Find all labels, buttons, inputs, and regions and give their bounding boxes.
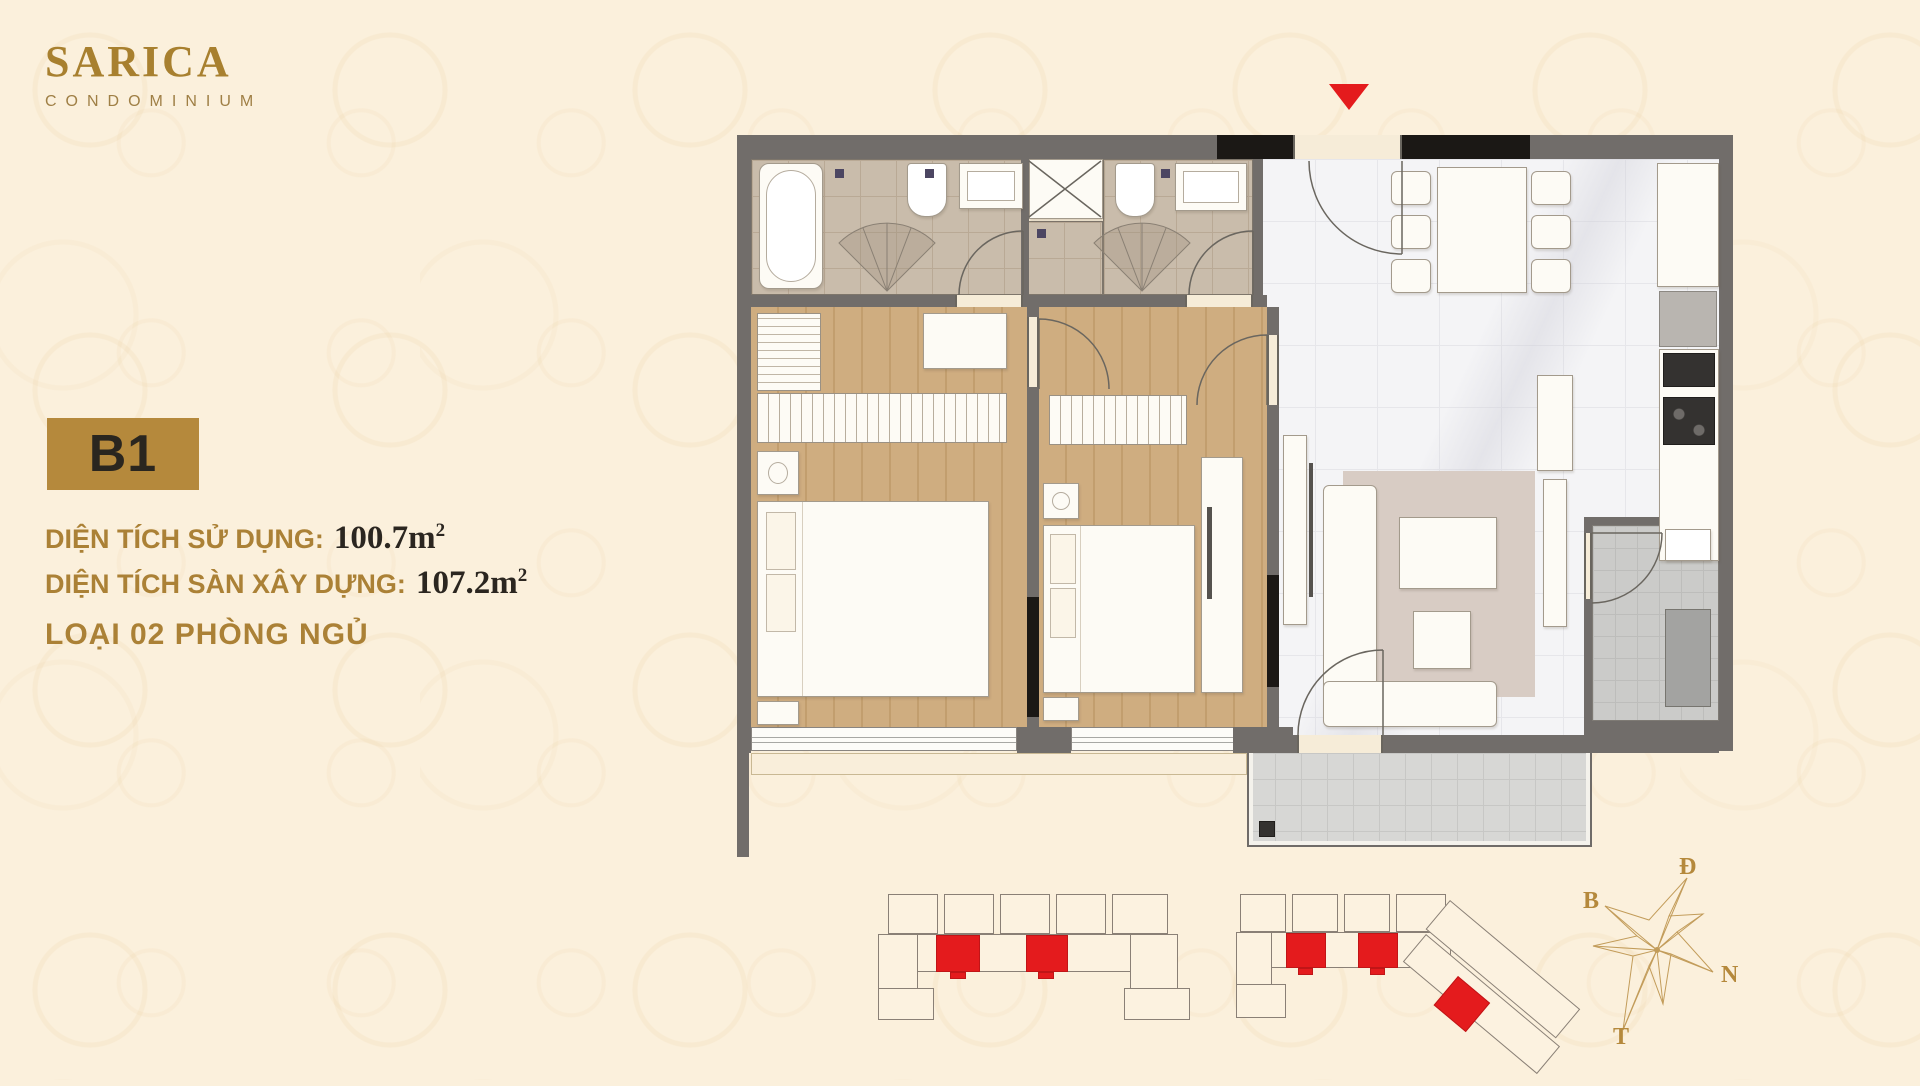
sofa-chaise bbox=[1323, 681, 1497, 727]
pouf bbox=[1413, 611, 1471, 669]
floor-drain bbox=[1037, 229, 1046, 238]
compass-rose: Đ B N T bbox=[1575, 862, 1855, 1067]
balcony-corner-pier bbox=[1233, 727, 1293, 753]
pillow bbox=[1050, 588, 1076, 638]
floor-drain bbox=[835, 169, 844, 178]
duvet-fold bbox=[802, 502, 803, 696]
kitchen-sink bbox=[1665, 529, 1711, 561]
brand-name: SARICA bbox=[45, 36, 262, 87]
highlighted-unit-b1 bbox=[1026, 935, 1068, 972]
master-window bbox=[751, 727, 1017, 751]
wall-utility-bottom bbox=[1584, 721, 1733, 735]
nightstand bbox=[1043, 697, 1079, 721]
keyplan-wing-right-block bbox=[1124, 988, 1190, 1020]
keyplan-unit bbox=[1240, 894, 1286, 932]
highlighted-unit-b1-balcony bbox=[1298, 968, 1313, 975]
cooktop bbox=[1663, 397, 1715, 445]
dining-chair bbox=[1391, 171, 1431, 205]
oven bbox=[1663, 353, 1715, 387]
compass-south-label: N bbox=[1721, 962, 1738, 989]
keyplan-unit bbox=[888, 894, 938, 934]
balcony-floor bbox=[1247, 753, 1592, 847]
usable-area-value: 100.7m2 bbox=[334, 520, 445, 557]
bath1-door-opening bbox=[955, 295, 1023, 307]
storage-cabinet bbox=[1537, 375, 1573, 471]
sink-1 bbox=[959, 163, 1023, 209]
ledge-strip bbox=[751, 753, 1247, 775]
wall-left bbox=[737, 159, 751, 753]
pillow bbox=[766, 574, 796, 632]
usable-area-label: DIỆN TÍCH SỬ DỤNG: bbox=[45, 524, 324, 555]
keyplan-wing-left-block bbox=[878, 988, 934, 1020]
sink-2-basin bbox=[1183, 171, 1239, 203]
storage-cabinet bbox=[1543, 479, 1567, 627]
keyplan-unit bbox=[1112, 894, 1168, 934]
tv bbox=[1309, 463, 1313, 597]
master-door-opening bbox=[1027, 317, 1039, 387]
bath2-door-opening bbox=[1185, 295, 1253, 307]
sink-2 bbox=[1175, 163, 1247, 211]
balcony-door-opening bbox=[1297, 735, 1383, 753]
nightstand bbox=[1043, 483, 1079, 519]
unit-code-badge: B1 bbox=[47, 418, 199, 490]
compass-east-label: Đ bbox=[1679, 854, 1696, 881]
nightstand bbox=[757, 701, 799, 725]
toilet-2 bbox=[1115, 163, 1155, 217]
sink-1-basin bbox=[967, 171, 1015, 201]
keyplan-wing-left-block bbox=[1236, 984, 1286, 1018]
master-wardrobe bbox=[757, 393, 1007, 443]
dining-chair bbox=[1531, 171, 1571, 205]
highlighted-unit-b1 bbox=[936, 935, 980, 972]
dining-chair bbox=[1391, 259, 1431, 293]
tv bbox=[1207, 507, 1212, 599]
keyplan-unit bbox=[1344, 894, 1390, 932]
entry-arrow-icon bbox=[1329, 84, 1369, 110]
gross-area-label: DIỆN TÍCH SÀN XÂY DỰNG: bbox=[45, 569, 406, 600]
master-bed bbox=[757, 501, 989, 697]
service-shaft bbox=[1029, 159, 1103, 219]
gross-area-line: DIỆN TÍCH SÀN XÂY DỰNG: 107.2m2 bbox=[45, 565, 527, 602]
usable-area-line: DIỆN TÍCH SỬ DỤNG: 100.7m2 bbox=[45, 520, 445, 557]
floor-plan bbox=[737, 135, 1733, 851]
entry-door-opening bbox=[1293, 135, 1402, 159]
balcony-drain-box bbox=[1259, 821, 1275, 837]
sofa bbox=[1323, 485, 1377, 693]
dining-chair bbox=[1531, 259, 1571, 293]
lamp bbox=[768, 462, 788, 484]
pillow bbox=[1050, 534, 1076, 584]
lamp bbox=[1052, 492, 1070, 510]
wall-bedroom2-living-black bbox=[1267, 575, 1279, 687]
keyplan-building-a bbox=[878, 890, 1178, 1022]
window-pier bbox=[1017, 727, 1071, 753]
compass-west-label: T bbox=[1613, 1024, 1629, 1051]
unit-type-label: LOẠI 02 PHÒNG NGỦ bbox=[45, 618, 369, 652]
gross-area-value: 107.2m2 bbox=[416, 565, 527, 602]
dining-chair bbox=[1391, 215, 1431, 249]
pillow bbox=[766, 512, 796, 570]
master-closet bbox=[757, 313, 821, 391]
brand-subtitle: CONDOMINIUM bbox=[45, 93, 262, 111]
highlighted-unit-b1-balcony bbox=[1038, 972, 1054, 979]
bathtub bbox=[759, 163, 823, 289]
wall-bedroom-divider-black bbox=[1027, 597, 1039, 717]
kitchen-upper-cabinet bbox=[1657, 163, 1719, 287]
wall-top-black-right bbox=[1402, 135, 1530, 159]
highlighted-unit-b1 bbox=[1286, 933, 1326, 968]
keyplan-unit bbox=[944, 894, 994, 934]
highlighted-unit-b1-balcony bbox=[1370, 968, 1385, 975]
floor-drain bbox=[925, 169, 934, 178]
highlighted-unit-b1 bbox=[1358, 933, 1398, 968]
duvet-fold bbox=[1080, 526, 1081, 692]
tv-cabinet bbox=[1283, 435, 1307, 625]
dining-table bbox=[1437, 167, 1527, 293]
unit-code: B1 bbox=[89, 424, 157, 484]
floor-drain bbox=[1161, 169, 1170, 178]
highlighted-unit-b1-balcony bbox=[950, 972, 966, 979]
bedroom2-window bbox=[1071, 727, 1247, 751]
wall-right bbox=[1719, 159, 1733, 751]
refrigerator bbox=[1659, 291, 1717, 347]
bedroom2-bed bbox=[1043, 525, 1195, 693]
bathtub-basin bbox=[766, 170, 816, 282]
dining-chair bbox=[1531, 215, 1571, 249]
brand-logo: SARICA CONDOMINIUM bbox=[45, 36, 262, 111]
keyplan-unit bbox=[1056, 894, 1106, 934]
master-dresser bbox=[923, 313, 1007, 369]
nightstand bbox=[757, 451, 799, 495]
keyplan-unit bbox=[1000, 894, 1050, 934]
utility-door-opening bbox=[1584, 533, 1592, 599]
utility-bed bbox=[1665, 609, 1711, 707]
bedroom2-wardrobe bbox=[1049, 395, 1187, 445]
compass-north-label: B bbox=[1583, 888, 1599, 915]
keyplan-unit bbox=[1292, 894, 1338, 932]
wall-top-black-left bbox=[1217, 135, 1293, 159]
wall-stub bbox=[737, 753, 749, 857]
wall-bath2-entry bbox=[1253, 159, 1263, 295]
bedroom2-door-opening bbox=[1267, 335, 1279, 405]
keyplan-building-b bbox=[1236, 886, 1596, 1086]
coffee-table bbox=[1399, 517, 1497, 589]
